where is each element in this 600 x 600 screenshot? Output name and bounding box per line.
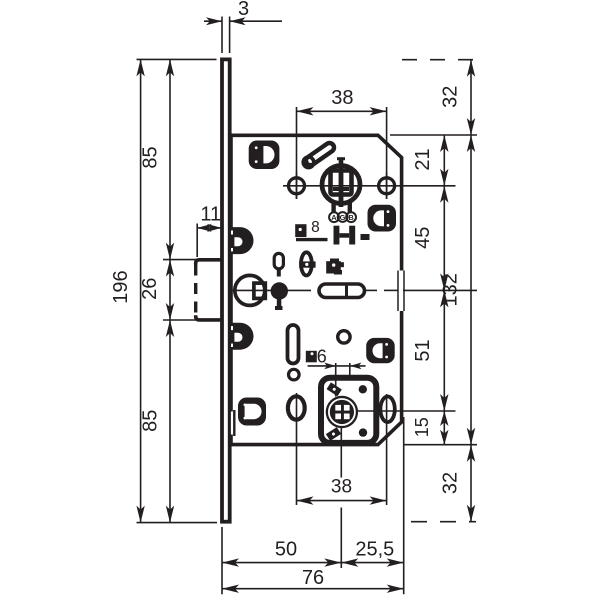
svg-text:26: 26 — [139, 278, 161, 300]
svg-text:38: 38 — [331, 87, 353, 109]
svg-text:G: G — [340, 213, 346, 222]
svg-text:50: 50 — [275, 538, 297, 560]
svg-text:85: 85 — [140, 146, 162, 168]
svg-text:25,5: 25,5 — [355, 539, 394, 561]
svg-text:85: 85 — [140, 410, 162, 432]
svg-text:11: 11 — [200, 203, 221, 225]
svg-text:21: 21 — [412, 148, 434, 170]
svg-text:15: 15 — [412, 417, 432, 437]
svg-text:8: 8 — [311, 219, 320, 236]
svg-text:B: B — [348, 213, 354, 222]
svg-text:32: 32 — [440, 472, 462, 494]
svg-text:51: 51 — [412, 339, 434, 361]
svg-text:3: 3 — [238, 0, 249, 20]
svg-text:196: 196 — [110, 270, 132, 303]
svg-text:A: A — [331, 213, 337, 222]
svg-text:32: 32 — [440, 86, 462, 108]
svg-text:45: 45 — [412, 227, 434, 249]
svg-text:76: 76 — [302, 567, 324, 589]
svg-text:38: 38 — [331, 477, 352, 498]
